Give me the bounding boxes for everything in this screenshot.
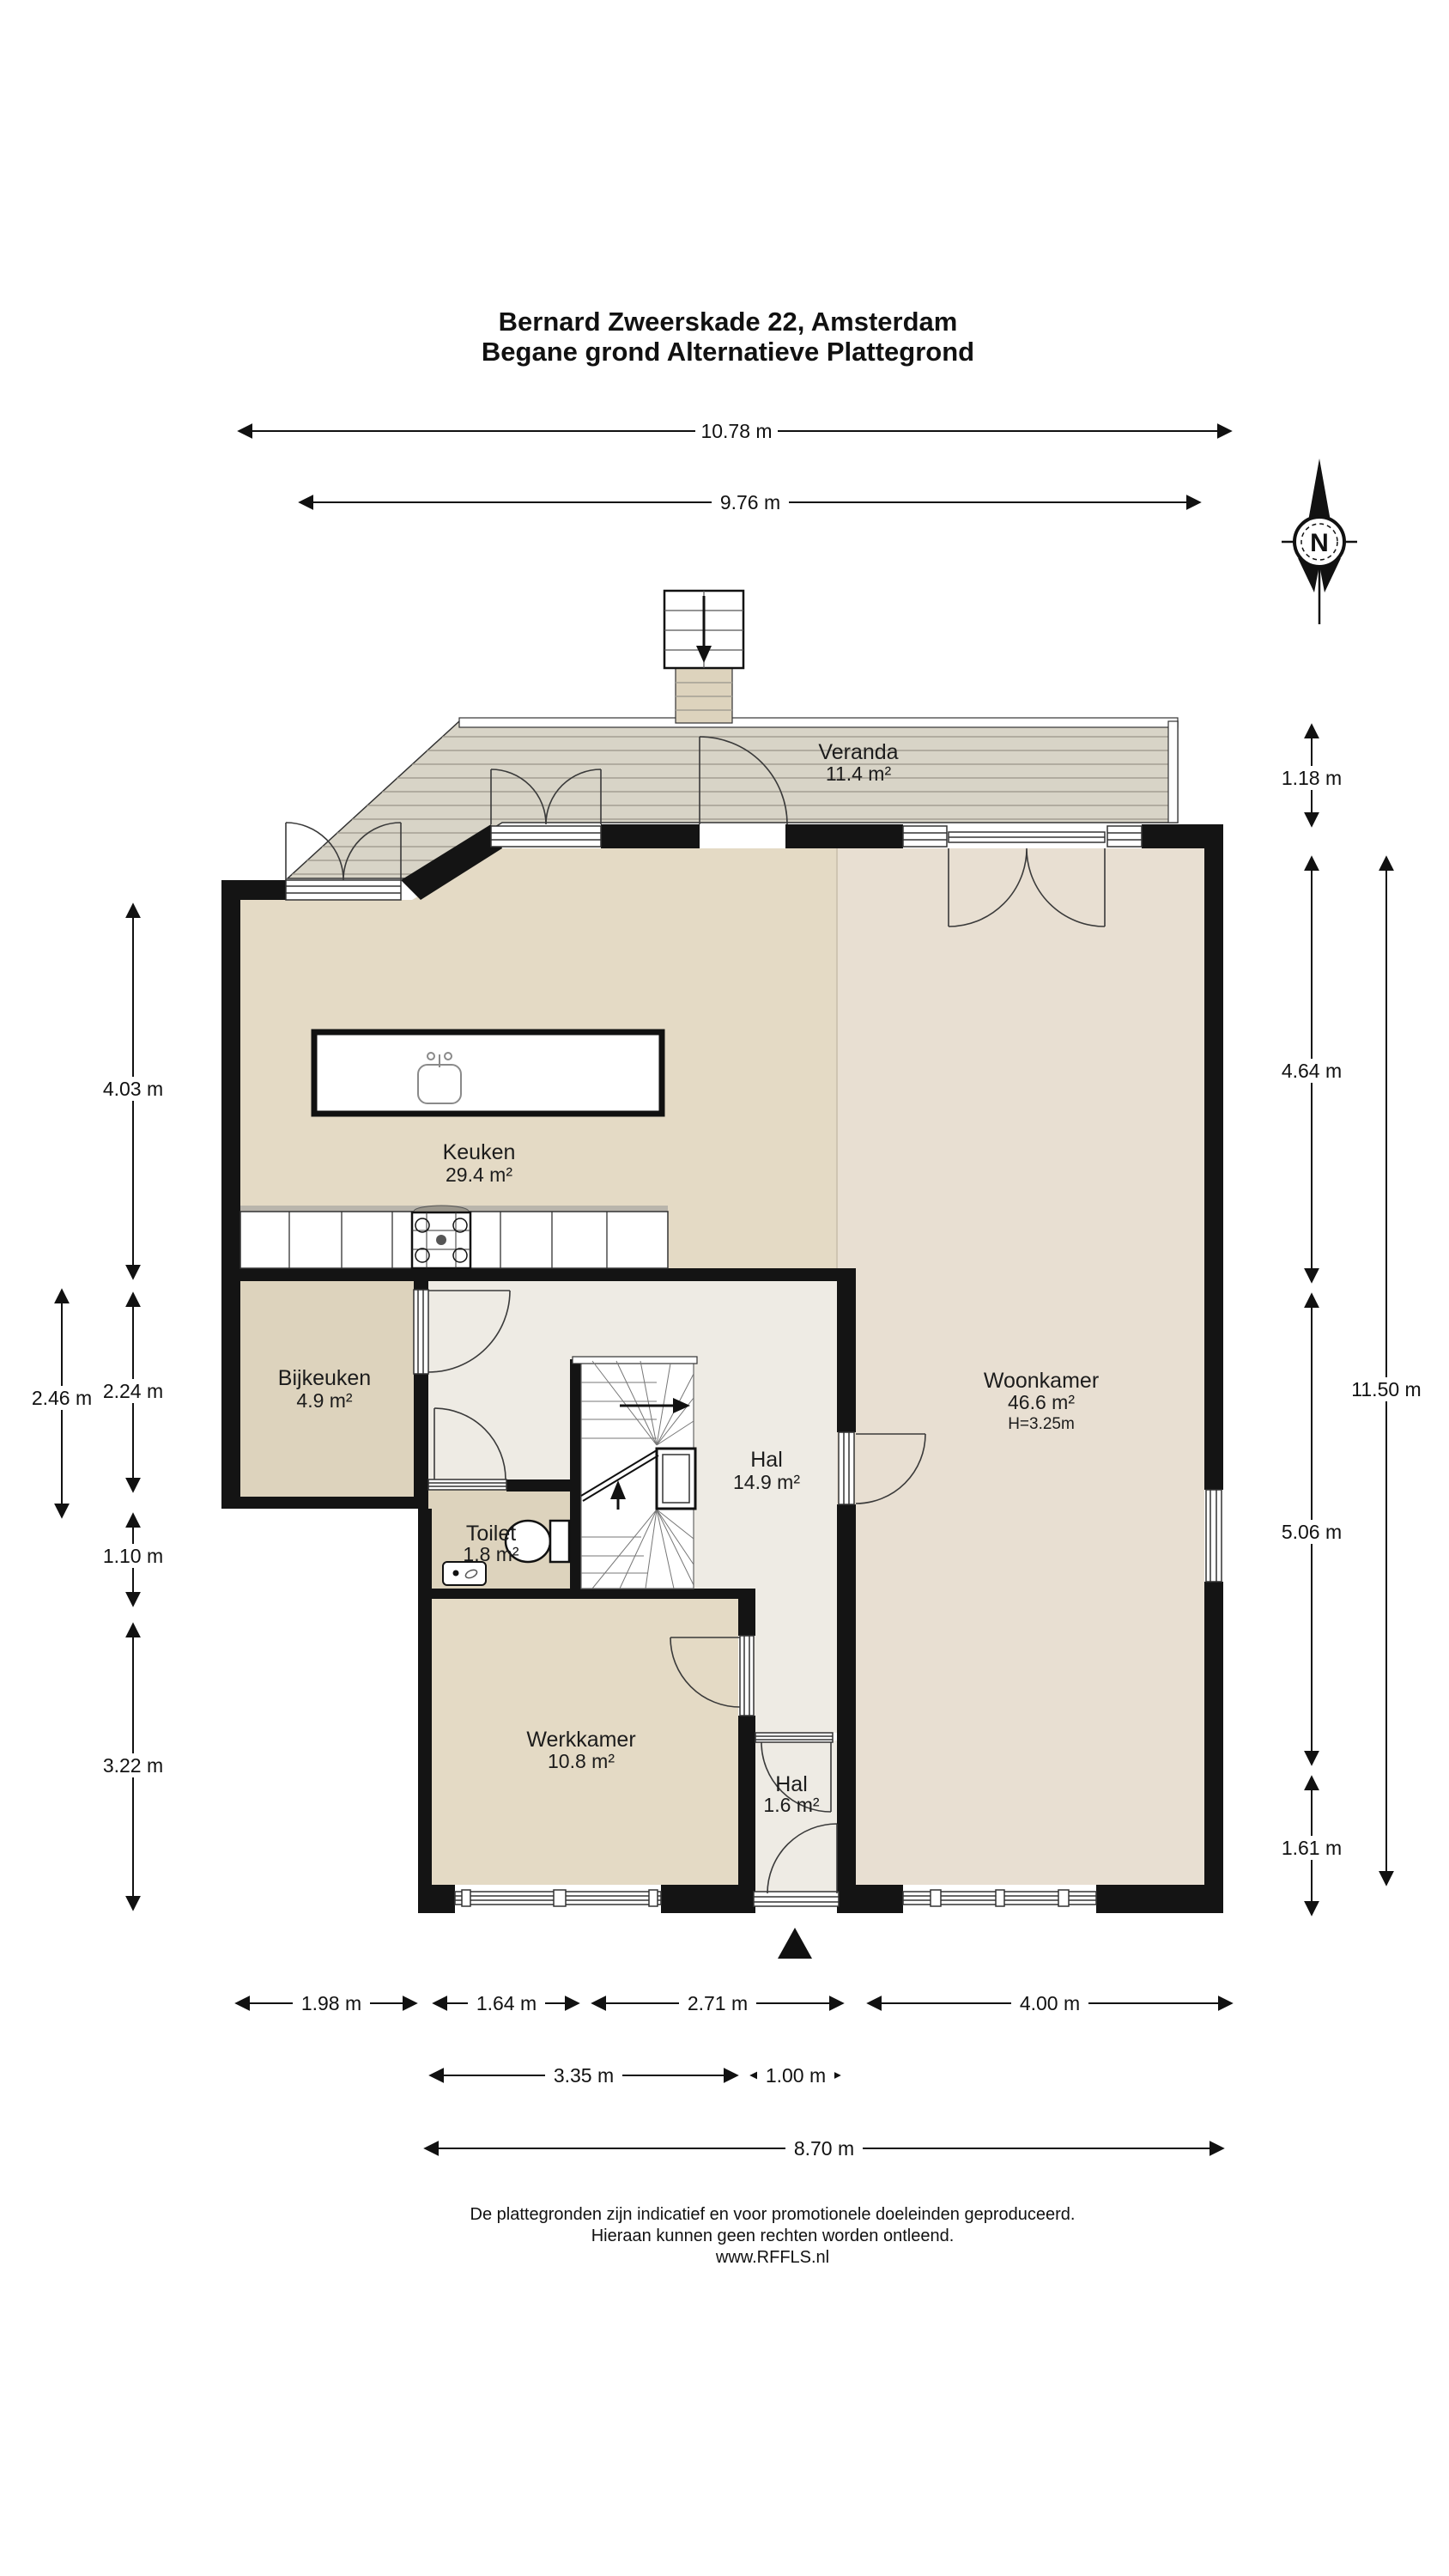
threshold-bijkeuken-door <box>414 1290 428 1374</box>
plan-title: Bernard Zweerskade 22, Amsterdam Begane … <box>482 307 974 367</box>
exterior-stairs <box>664 591 743 723</box>
dim-right-1-18: 1.18 m <box>1273 725 1350 826</box>
window-right-wall <box>1206 1490 1222 1582</box>
svg-text:5.06 m: 5.06 m <box>1282 1521 1342 1543</box>
dim-bottom-4-00: 4.00 m <box>868 1990 1232 2016</box>
dim-left-2-24: 2.24 m <box>94 1293 172 1492</box>
french-door-threshold <box>949 832 1105 842</box>
dim-right-11-50: 11.50 m <box>1342 857 1431 1885</box>
stove-icon <box>412 1206 470 1268</box>
window-woonkamer-north-right <box>1107 826 1142 847</box>
threshold-woonkamer-door <box>839 1432 854 1504</box>
veranda-railing-right <box>1168 721 1178 823</box>
footer-line-2: Hieraan kunnen geen rechten worden ontle… <box>591 2227 955 2245</box>
dim-bottom-1-64: 1.64 m <box>433 1990 579 2016</box>
dim-left-1-10: 1.10 m <box>94 1514 172 1606</box>
dim-top-9-76: 9.76 m <box>300 489 1200 515</box>
svg-text:1.6 m²: 1.6 m² <box>763 1794 820 1816</box>
svg-text:2.24 m: 2.24 m <box>103 1380 163 1402</box>
dim-left-2-46: 2.46 m <box>24 1290 101 1517</box>
svg-text:4.9 m²: 4.9 m² <box>296 1389 353 1412</box>
dim-bottom-1-00: 1.00 m <box>751 2063 840 2088</box>
floor-hal-entree <box>745 1741 837 1896</box>
dim-top-10-78: 10.78 m <box>239 418 1231 444</box>
svg-text:4.03 m: 4.03 m <box>103 1078 163 1100</box>
svg-text:Hal: Hal <box>750 1448 783 1472</box>
compass-north-icon: N <box>1282 459 1357 624</box>
svg-text:14.9 m²: 14.9 m² <box>733 1471 800 1493</box>
svg-text:Keuken: Keuken <box>443 1140 516 1164</box>
dim-right-5-06: 5.06 m <box>1273 1294 1350 1765</box>
dim-bottom-2-71: 2.71 m <box>592 1990 843 2016</box>
svg-text:1.00 m: 1.00 m <box>766 2064 826 2087</box>
title-line-2: Begane grond Alternatieve Plattegrond <box>482 337 974 367</box>
compass-label: N <box>1310 529 1329 557</box>
dim-left-4-03: 4.03 m <box>94 904 172 1279</box>
veranda-railing-top <box>459 718 1178 727</box>
svg-text:2.71 m: 2.71 m <box>688 1992 748 2014</box>
toilet-sink-icon <box>443 1562 486 1585</box>
threshold-toilet-door <box>428 1479 506 1490</box>
svg-text:10.8 m²: 10.8 m² <box>548 1750 615 1772</box>
svg-text:1.98 m: 1.98 m <box>301 1992 361 2014</box>
window-keuken-north <box>491 826 601 847</box>
veranda-walkway <box>676 666 732 723</box>
window-woonkamer-south <box>903 1890 1096 1906</box>
dim-bottom-8-70: 8.70 m <box>425 2136 1223 2161</box>
room-label-keuken: Keuken 29.4 m² <box>443 1140 516 1186</box>
kitchen-island <box>314 1032 662 1114</box>
svg-text:3.35 m: 3.35 m <box>554 2064 614 2087</box>
svg-text:Veranda: Veranda <box>818 740 898 764</box>
svg-text:H=3.25m: H=3.25m <box>1008 1415 1075 1433</box>
svg-text:1.8 m²: 1.8 m² <box>463 1543 519 1565</box>
svg-text:29.4 m²: 29.4 m² <box>446 1163 512 1186</box>
dim-right-4-64: 4.64 m <box>1273 857 1350 1282</box>
svg-text:1.18 m: 1.18 m <box>1282 767 1342 789</box>
svg-text:Bijkeuken: Bijkeuken <box>278 1366 371 1390</box>
svg-text:4.64 m: 4.64 m <box>1282 1060 1342 1082</box>
room-label-veranda: Veranda 11.4 m² <box>818 740 898 785</box>
window-werkkamer-south <box>455 1890 661 1906</box>
svg-text:10.78 m: 10.78 m <box>700 420 772 442</box>
room-label-toilet: Toilet 1.8 m² <box>463 1522 519 1565</box>
threshold-hal-entree-north <box>755 1733 833 1742</box>
svg-text:46.6 m²: 46.6 m² <box>1008 1391 1075 1413</box>
svg-text:1.10 m: 1.10 m <box>103 1545 163 1567</box>
window-woonkamer-north-left <box>903 826 947 847</box>
svg-text:8.70 m: 8.70 m <box>794 2137 854 2160</box>
dim-bottom-3-35: 3.35 m <box>430 2063 737 2088</box>
footer-line-3: www.RFFLS.nl <box>715 2248 829 2267</box>
svg-text:2.46 m: 2.46 m <box>32 1387 92 1409</box>
svg-text:11.50 m: 11.50 m <box>1351 1378 1421 1400</box>
svg-text:9.76 m: 9.76 m <box>720 491 780 513</box>
floorplan-canvas: Bernard Zweerskade 22, Amsterdam Begane … <box>0 0 1449 2576</box>
dim-bottom-1-98: 1.98 m <box>236 1990 416 2016</box>
svg-text:4.00 m: 4.00 m <box>1020 1992 1080 2014</box>
threshold-werkkamer-door <box>740 1636 754 1716</box>
threshold-entrance-door <box>754 1892 839 1906</box>
svg-text:1.61 m: 1.61 m <box>1282 1837 1342 1859</box>
svg-text:Toilet: Toilet <box>466 1522 516 1546</box>
dim-right-1-61: 1.61 m <box>1273 1777 1350 1915</box>
kitchen-counter <box>240 1206 668 1268</box>
footer-line-1: De plattegronden zijn indicatief en voor… <box>470 2205 1076 2224</box>
svg-text:Woonkamer: Woonkamer <box>984 1369 1099 1393</box>
footer-disclaimer: De plattegronden zijn indicatief en voor… <box>470 2205 1076 2267</box>
svg-text:3.22 m: 3.22 m <box>103 1754 163 1777</box>
stair-landing <box>657 1449 695 1509</box>
staircase <box>573 1357 697 1589</box>
dim-left-3-22: 3.22 m <box>94 1624 172 1910</box>
window-west-wing <box>286 880 401 900</box>
svg-text:1.64 m: 1.64 m <box>476 1992 537 2014</box>
svg-text:Hal: Hal <box>775 1772 808 1796</box>
entrance-arrow-icon <box>778 1928 812 1959</box>
svg-text:11.4 m²: 11.4 m² <box>826 762 892 785</box>
title-line-1: Bernard Zweerskade 22, Amsterdam <box>499 307 958 337</box>
floor-woonkamer <box>837 848 1204 1885</box>
svg-text:Werkkamer: Werkkamer <box>526 1728 635 1752</box>
